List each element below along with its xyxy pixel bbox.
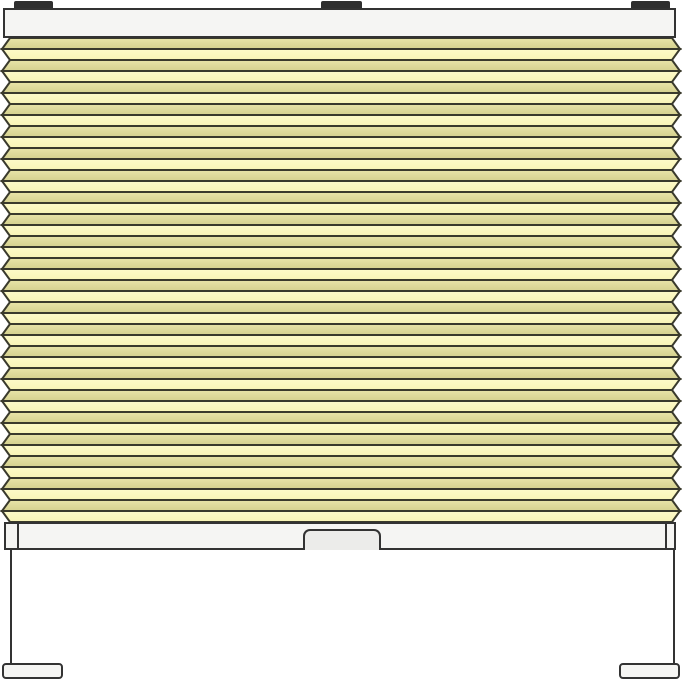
pleat-face [2, 467, 680, 478]
pleated-blind-illustration [0, 0, 682, 680]
pleat-face [2, 148, 680, 159]
pleat-face [2, 104, 680, 115]
pleat-face [2, 478, 680, 489]
pleat-face [2, 269, 680, 280]
pleat-face [2, 170, 680, 181]
pleat-faces [2, 38, 680, 522]
pleat-face [2, 71, 680, 82]
pleat-face [2, 93, 680, 104]
pleat-face [2, 115, 680, 126]
tension-cord-right [673, 549, 675, 664]
tension-cord-left [10, 549, 12, 664]
pleat-face [2, 390, 680, 401]
pleat-face [2, 225, 680, 236]
pleat-face [2, 181, 680, 192]
pleat-face [2, 291, 680, 302]
pleat-face [2, 302, 680, 313]
pleat-face [2, 236, 680, 247]
pleated-fabric [0, 38, 682, 522]
pleat-face [2, 379, 680, 390]
bottom-rail-endcap-right [665, 524, 667, 548]
pleat-face [2, 159, 680, 170]
pleat-face [2, 346, 680, 357]
pleat-face [2, 313, 680, 324]
pleat-face [2, 434, 680, 445]
pleat-face [2, 192, 680, 203]
pleat-face [2, 456, 680, 467]
pleat-face [2, 445, 680, 456]
pleat-face [2, 412, 680, 423]
pleat-face [2, 511, 680, 522]
pleat-face [2, 214, 680, 225]
pleat-face [2, 500, 680, 511]
pleat-face [2, 401, 680, 412]
pleat-face [2, 335, 680, 346]
pleat-face [2, 489, 680, 500]
pleat-face [2, 49, 680, 60]
pleat-face [2, 324, 680, 335]
pleat-face [2, 82, 680, 93]
foot-bracket-left [2, 663, 63, 679]
pleat-face [2, 60, 680, 71]
pleat-face [2, 247, 680, 258]
pleat-face [2, 258, 680, 269]
pleat-face [2, 38, 680, 49]
pleat-face [2, 357, 680, 368]
bottom-rail-handle[interactable] [303, 529, 381, 550]
foot-bracket-right [619, 663, 680, 679]
pleat-face [2, 423, 680, 434]
pleat-face [2, 368, 680, 379]
headrail [3, 8, 676, 38]
bottom-rail-endcap-left [17, 524, 19, 548]
pleat-face [2, 280, 680, 291]
pleat-face [2, 137, 680, 148]
pleat-face [2, 203, 680, 214]
pleat-face [2, 126, 680, 137]
